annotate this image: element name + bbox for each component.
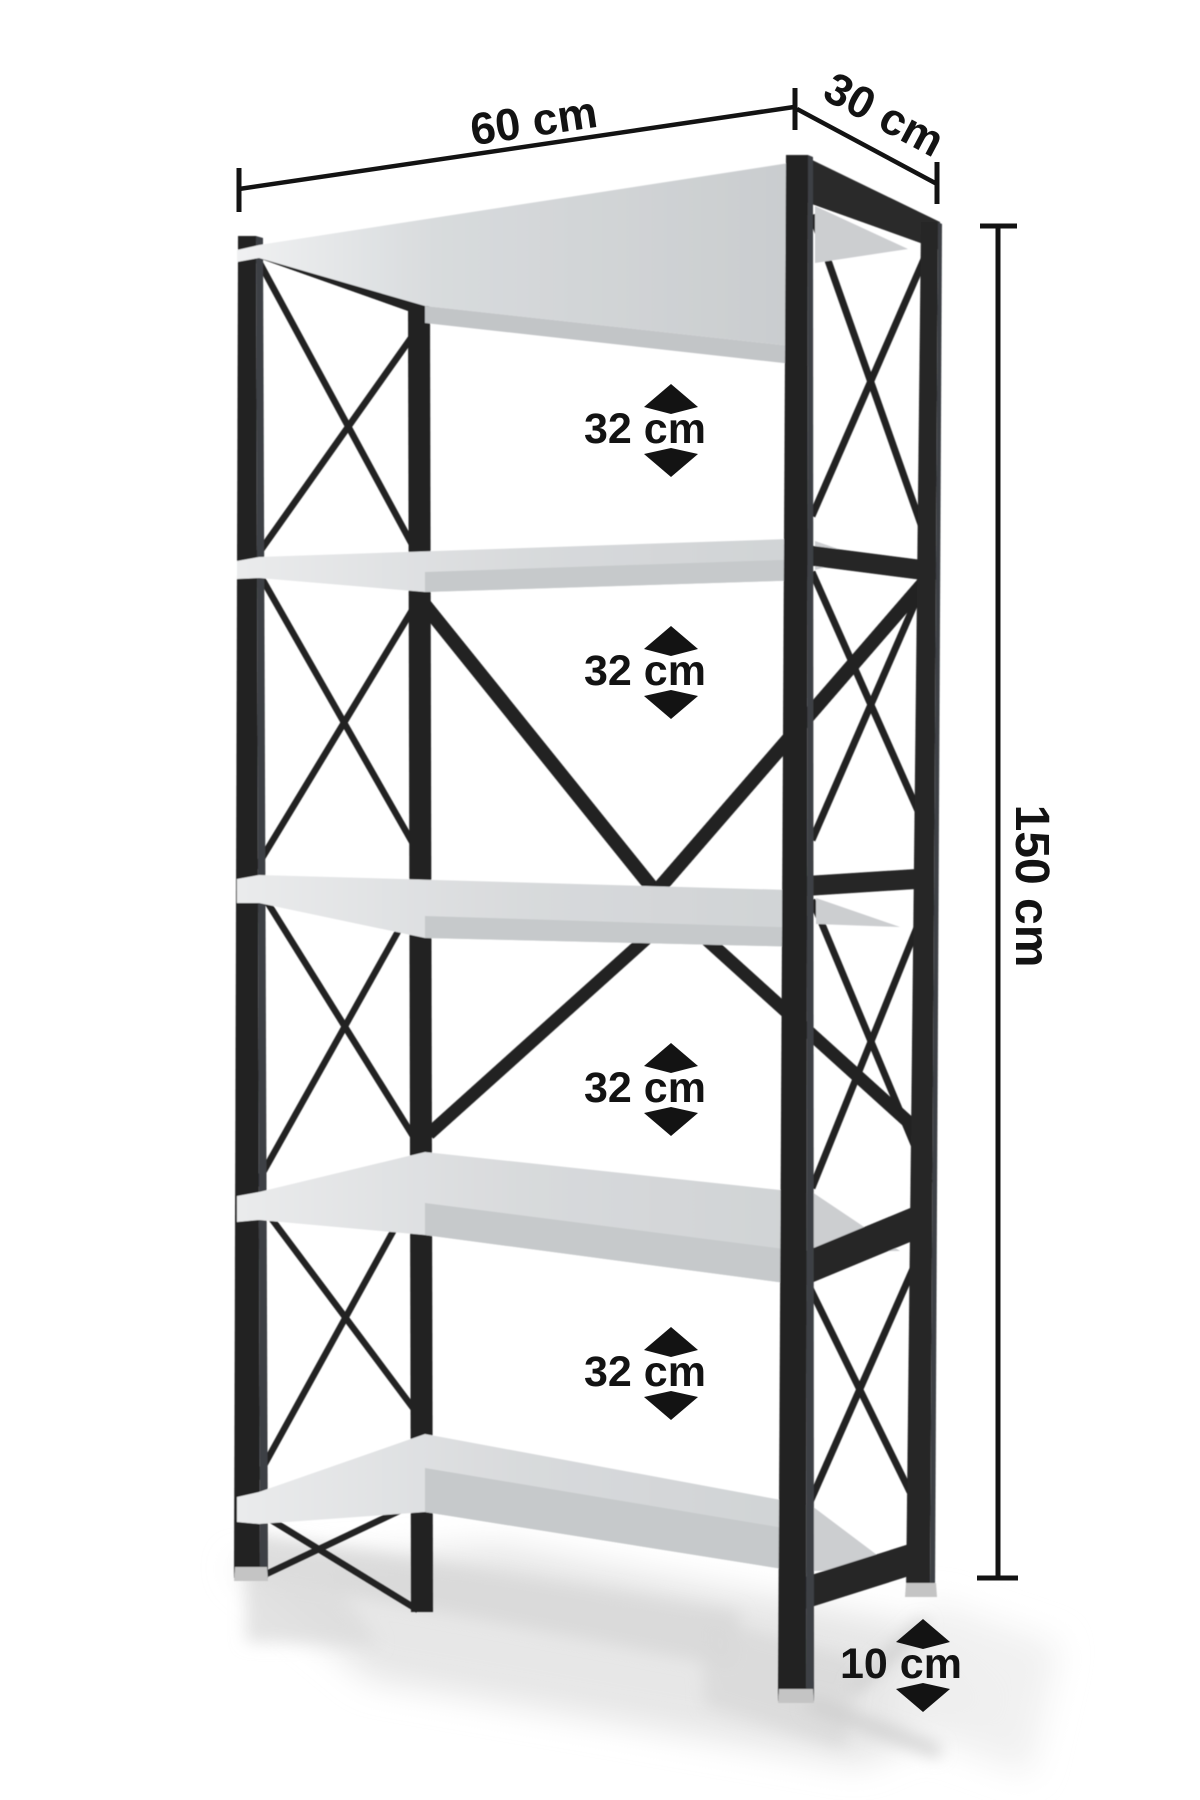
svg-text:32 cm: 32 cm bbox=[584, 647, 706, 695]
svg-text:150 cm: 150 cm bbox=[1005, 805, 1058, 968]
svg-text:10 cm: 10 cm bbox=[840, 1640, 962, 1688]
svg-text:32 cm: 32 cm bbox=[584, 1348, 706, 1396]
svg-text:32 cm: 32 cm bbox=[584, 405, 706, 453]
svg-text:32 cm: 32 cm bbox=[584, 1064, 706, 1112]
